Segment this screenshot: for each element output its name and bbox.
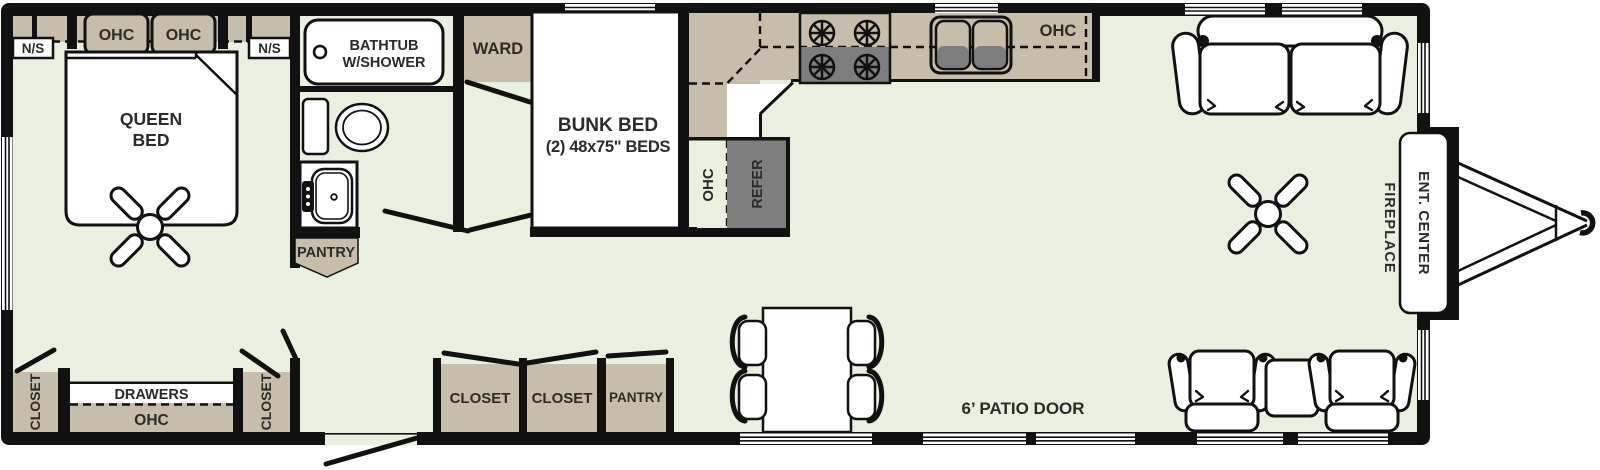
ns-right-label: N/S	[258, 41, 281, 56]
tub-drain	[314, 46, 326, 58]
window-chairs-right	[1298, 434, 1388, 445]
fireplace-label: FIREPLACE	[1381, 182, 1397, 273]
ent-center-label: ENT. CENTER	[1415, 171, 1432, 275]
dining-table	[763, 308, 851, 432]
closet-mid-1-label: CLOSET	[450, 390, 511, 407]
kitchen-ohc-upper-label: OHC	[1040, 22, 1077, 40]
bathtub-label-2: W/SHOWER	[343, 55, 426, 71]
trailer-floorplan: OHC OHC N/S N/S QUEEN BED CLOSET DRAWERS…	[0, 0, 1600, 470]
hitch-coupler	[1580, 213, 1593, 233]
ohc-2-label: OHC	[166, 27, 202, 44]
queen-bed-label-2: BED	[133, 130, 170, 150]
bunk-label-2: (2) 48x75" BEDS	[546, 138, 671, 156]
drawers-ohc-label: OHC	[134, 412, 168, 429]
sofa	[1171, 16, 1409, 115]
bathtub-label-1: BATHTUB	[350, 38, 419, 54]
ns-left-label: N/S	[22, 41, 45, 56]
refer-label: REFER	[750, 159, 766, 209]
drawers-label: DRAWERS	[114, 387, 188, 403]
floorplan-canvas: OHC OHC N/S N/S QUEEN BED CLOSET DRAWERS…	[0, 0, 1600, 470]
patio-door	[923, 432, 1135, 445]
window-chairs-left	[1197, 434, 1283, 445]
window-bedroom-left	[2, 137, 13, 310]
pantry-bath-label: PANTRY	[297, 245, 355, 261]
window-rear-bottom	[1418, 330, 1429, 400]
tow-hitch	[1458, 163, 1593, 285]
window-rear-top	[1418, 43, 1429, 113]
patio-door-label: 6’ PATIO DOOR	[961, 399, 1084, 418]
window-dining	[740, 434, 872, 445]
ohc-1-label: OHC	[99, 27, 135, 44]
kitchen-ohc-lower-label: OHC	[700, 168, 717, 202]
window-kitchen-top	[935, 4, 998, 15]
window-sofa-right	[1282, 4, 1362, 15]
closet-mid-2-label: CLOSET	[532, 390, 593, 407]
pantry-mid-label: PANTRY	[609, 390, 663, 405]
window-sofa-left	[1185, 4, 1265, 15]
bunk-room: BUNK BED (2) 48x75" BEDS	[530, 12, 697, 237]
queen-bed-label-1: QUEEN	[120, 109, 182, 129]
closet-left-label: CLOSET	[27, 373, 43, 430]
bunk-label-1: BUNK BED	[558, 115, 658, 136]
bathroom-sink	[300, 162, 357, 228]
closet-right-label: CLOSET	[258, 373, 274, 430]
ward-label: WARD	[473, 40, 523, 58]
